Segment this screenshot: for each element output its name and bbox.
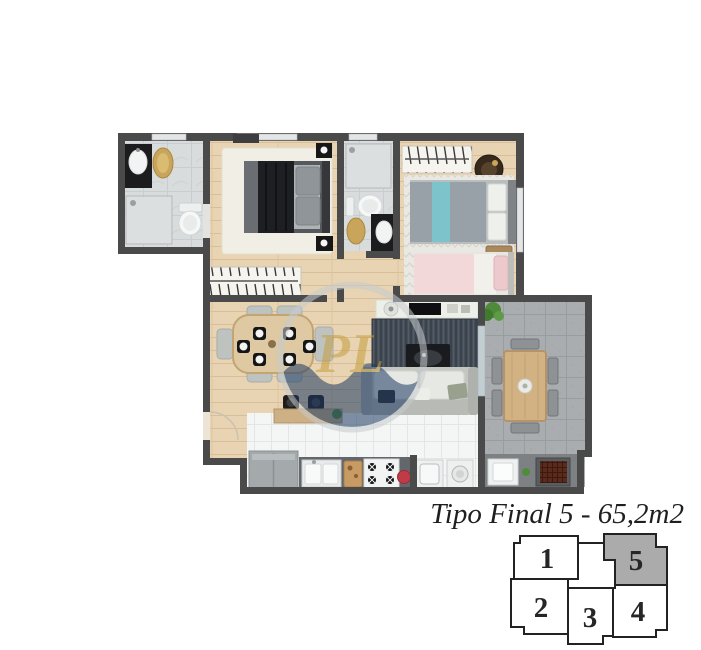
door-opening [344, 251, 366, 258]
keyplan-label-4: 4 [631, 596, 646, 628]
gold-basket [347, 218, 365, 244]
window [152, 134, 186, 140]
shower-head-icon [349, 147, 355, 153]
balcony-chair [511, 339, 539, 349]
faucet-icon [312, 460, 316, 464]
throw-pillow [447, 383, 468, 400]
barbecue-grill-icon [536, 458, 570, 486]
kitchen-sink [302, 460, 341, 487]
window-sash [233, 134, 259, 143]
keyplan-label-5: 5 [629, 545, 644, 577]
floorplan-image: PL Tipo Final 5 - 65,2m2 1 2 3 4 5 [0, 0, 701, 650]
washing-machine-icon [447, 460, 473, 488]
fridge-icon [249, 451, 298, 489]
bathroom1-door-opening [203, 204, 210, 238]
tv-icon [409, 303, 441, 315]
headboard [508, 252, 514, 296]
shower-head-icon [130, 200, 136, 206]
bedroom2 [402, 146, 516, 297]
entry-door-leaf [203, 412, 210, 440]
toilet-icon [346, 195, 382, 217]
decor-books [447, 304, 458, 313]
cutting-board [344, 461, 362, 487]
toilet-icon [179, 203, 202, 235]
keyplan-label-1: 1 [540, 543, 555, 575]
keyplan-label-2: 2 [534, 592, 549, 624]
bed-gray-blue [410, 180, 516, 244]
pillow [494, 256, 508, 290]
dining-chair [217, 329, 233, 359]
nightstand [316, 236, 333, 251]
balcony-glass-door [478, 326, 485, 396]
plant-icon [522, 468, 530, 476]
decor-books [461, 305, 470, 313]
cooktop-icon [364, 459, 399, 488]
double-bed [244, 161, 330, 233]
pillow [296, 167, 320, 195]
plan-title: Tipo Final 5 - 65,2m2 [430, 498, 684, 530]
headboard [322, 161, 330, 233]
keyplan: 1 2 3 4 5 [511, 534, 667, 644]
balcony-sink [488, 459, 518, 485]
balcony-chair [548, 358, 558, 384]
faucet-icon [136, 148, 140, 152]
red-kettle [398, 471, 411, 484]
laundry-sink [416, 460, 443, 488]
window [349, 134, 377, 140]
pillow [488, 213, 506, 240]
door-opening [393, 259, 400, 286]
closet-rack [207, 267, 301, 296]
sink-icon [376, 221, 392, 243]
balcony-chair [492, 358, 502, 384]
tv-sideboard [376, 300, 478, 318]
gold-mirror-inner [157, 153, 169, 173]
sink-icon [129, 150, 147, 174]
pillow [296, 197, 320, 225]
centerpiece [268, 340, 276, 348]
decor-plate-dot [389, 307, 394, 312]
nightstand [316, 143, 332, 158]
balcony-chair [548, 390, 558, 416]
balcony-table [504, 351, 546, 421]
bed-pink [414, 252, 514, 296]
window [517, 188, 523, 252]
balcony-chair [511, 423, 539, 433]
keyplan-label-3: 3 [583, 602, 598, 634]
pillow [488, 184, 506, 211]
balcony-chair [492, 390, 502, 416]
clothes-rack [402, 146, 472, 173]
blue-runner [432, 182, 450, 242]
watermark-letters: PL [315, 323, 384, 385]
headboard [508, 180, 516, 244]
